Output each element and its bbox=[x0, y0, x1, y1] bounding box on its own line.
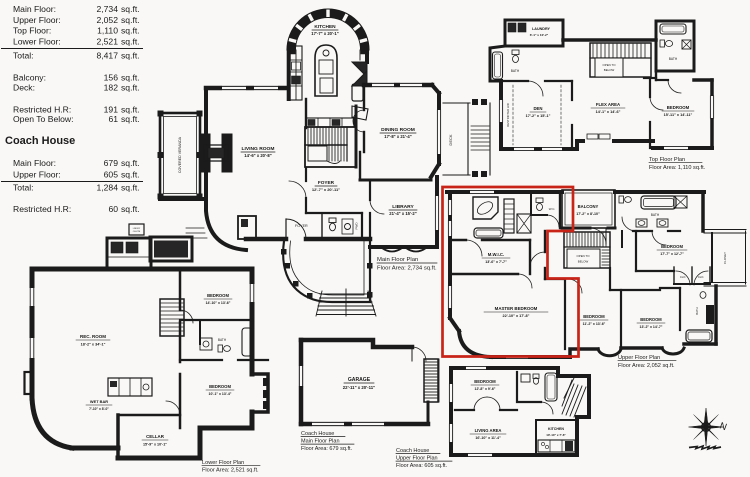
svg-text:Restricted H.R:: Restricted H.R: bbox=[13, 204, 71, 214]
svg-text:22'-10" x 17'-8": 22'-10" x 17'-8" bbox=[503, 314, 530, 318]
svg-text:CLO.: CLO. bbox=[698, 275, 705, 279]
svg-text:12'-8" x 9'-6": 12'-8" x 9'-6" bbox=[475, 387, 496, 391]
svg-text:10'-10" x 7'-6": 10'-10" x 7'-6" bbox=[546, 433, 566, 437]
svg-text:sq.ft.: sq.ft. bbox=[121, 204, 140, 214]
svg-text:LIVING ROOM: LIVING ROOM bbox=[242, 146, 275, 152]
svg-text:156: 156 bbox=[104, 73, 119, 83]
svg-text:MASTER BEDROOM: MASTER BEDROOM bbox=[495, 306, 538, 311]
svg-text:BEDROOM: BEDROOM bbox=[583, 314, 605, 319]
svg-text:sq.ft.: sq.ft. bbox=[121, 51, 140, 61]
svg-text:Open To Below:: Open To Below: bbox=[13, 114, 74, 124]
svg-text:BEDROOM: BEDROOM bbox=[661, 244, 683, 249]
svg-text:191: 191 bbox=[104, 105, 119, 115]
svg-text:Restricted H.R:: Restricted H.R: bbox=[13, 105, 71, 115]
svg-text:BEDROOM: BEDROOM bbox=[207, 293, 229, 298]
svg-text:LNDRY: LNDRY bbox=[133, 228, 141, 230]
svg-text:sq.ft.: sq.ft. bbox=[121, 26, 140, 36]
svg-text:14'-10" x 13'-6": 14'-10" x 13'-6" bbox=[206, 301, 231, 305]
svg-text:Floor Area: 605 sq.ft.: Floor Area: 605 sq.ft. bbox=[396, 463, 448, 469]
svg-text:Lower Floor Plan: Lower Floor Plan bbox=[202, 460, 244, 466]
svg-text:BELOW: BELOW bbox=[604, 68, 615, 72]
svg-text:BATH: BATH bbox=[511, 69, 520, 73]
svg-text:22'-11" x 20'-11": 22'-11" x 20'-11" bbox=[343, 385, 375, 390]
svg-text:Coach House: Coach House bbox=[301, 431, 334, 437]
svg-text:Top Floor Plan: Top Floor Plan bbox=[649, 157, 685, 163]
svg-text:16'-10" x 11'-4": 16'-10" x 11'-4" bbox=[475, 436, 501, 440]
svg-text:GARAGE: GARAGE bbox=[348, 377, 371, 383]
svg-text:OPEN TO: OPEN TO bbox=[577, 254, 591, 258]
svg-text:2,734: 2,734 bbox=[96, 4, 118, 14]
svg-text:15'-9" x 10'-1": 15'-9" x 10'-1" bbox=[143, 443, 167, 447]
svg-text:Floor Area: 2,521 sq.ft.: Floor Area: 2,521 sq.ft. bbox=[202, 468, 259, 474]
svg-text:12'-7" x 20'-11": 12'-7" x 20'-11" bbox=[312, 187, 340, 192]
svg-text:10'-1" x 13'-4": 10'-1" x 13'-4" bbox=[209, 392, 232, 396]
svg-text:Total:: Total: bbox=[13, 51, 34, 61]
svg-text:Main Floor:: Main Floor: bbox=[13, 4, 56, 14]
svg-text:61: 61 bbox=[108, 114, 118, 124]
svg-text:Floor Area: 1,110 sq.ft.: Floor Area: 1,110 sq.ft. bbox=[649, 165, 706, 171]
svg-text:Coach House: Coach House bbox=[5, 135, 75, 147]
svg-text:14'-1" x 14'-6": 14'-1" x 14'-6" bbox=[596, 110, 621, 114]
svg-text:Floor Area: 679 sq.ft.: Floor Area: 679 sq.ft. bbox=[301, 446, 353, 452]
svg-text:Upper Floor:: Upper Floor: bbox=[13, 170, 61, 180]
svg-text:BEDROOM: BEDROOM bbox=[474, 379, 496, 384]
svg-text:sq.ft.: sq.ft. bbox=[121, 83, 140, 93]
svg-text:Top Floor:: Top Floor: bbox=[13, 26, 51, 36]
svg-text:14'-6" x 20'-8": 14'-6" x 20'-8" bbox=[244, 153, 271, 158]
svg-text:Total:: Total: bbox=[13, 183, 34, 193]
svg-text:605: 605 bbox=[104, 170, 119, 180]
svg-text:FLEX AREA: FLEX AREA bbox=[596, 102, 620, 107]
svg-text:DECK: DECK bbox=[448, 134, 453, 145]
svg-text:OPEN TO: OPEN TO bbox=[603, 63, 617, 67]
svg-text:W.C.: W.C. bbox=[549, 207, 556, 211]
svg-text:Upper Floor Plan: Upper Floor Plan bbox=[396, 456, 438, 462]
svg-text:13'-2" x 14'-7": 13'-2" x 14'-7" bbox=[640, 325, 663, 329]
svg-text:CLOSET: CLOSET bbox=[723, 252, 727, 264]
svg-text:17'-7" x 12'-7": 17'-7" x 12'-7" bbox=[660, 252, 684, 256]
svg-text:15'-11" x 14'-11": 15'-11" x 14'-11" bbox=[664, 113, 693, 117]
svg-text:BALCONY: BALCONY bbox=[578, 204, 599, 209]
svg-text:BATH: BATH bbox=[218, 338, 227, 342]
svg-text:WET BAR: WET BAR bbox=[90, 399, 108, 404]
svg-text:Main Floor:: Main Floor: bbox=[13, 158, 56, 168]
svg-text:sq.ft.: sq.ft. bbox=[121, 73, 140, 83]
svg-text:13'-6" x 7'-7": 13'-6" x 7'-7" bbox=[485, 260, 507, 264]
svg-text:sq.ft.: sq.ft. bbox=[121, 114, 140, 124]
svg-text:BEDROOM: BEDROOM bbox=[667, 105, 690, 110]
svg-text:BEDROOM: BEDROOM bbox=[209, 384, 231, 389]
svg-text:7'-10" x 8'-0": 7'-10" x 8'-0" bbox=[89, 407, 109, 411]
svg-text:CELLAR: CELLAR bbox=[146, 434, 165, 439]
svg-text:Balcony:: Balcony: bbox=[13, 73, 46, 83]
svg-text:2,521: 2,521 bbox=[96, 37, 118, 47]
svg-text:18'-2" x 34'-1": 18'-2" x 34'-1" bbox=[81, 343, 106, 347]
svg-text:Floor Area: 2,734 sq.ft.: Floor Area: 2,734 sq.ft. bbox=[377, 266, 437, 272]
svg-text:21'-4" x 15'-2": 21'-4" x 15'-2" bbox=[389, 211, 416, 216]
svg-text:LIBRARY: LIBRARY bbox=[392, 204, 414, 210]
svg-text:sq.ft.: sq.ft. bbox=[121, 170, 140, 180]
svg-text:17'-7" x 20'-1": 17'-7" x 20'-1" bbox=[311, 31, 338, 36]
svg-text:Upper Floor Plan: Upper Floor Plan bbox=[618, 355, 660, 361]
svg-text:COVERED VERANDA: COVERED VERANDA bbox=[178, 136, 182, 173]
svg-text:PWD: PWD bbox=[355, 222, 359, 230]
svg-text:CHUTE: CHUTE bbox=[133, 231, 141, 233]
svg-text:REC. ROOM: REC. ROOM bbox=[80, 334, 106, 339]
svg-text:KITCHEN: KITCHEN bbox=[314, 24, 336, 30]
svg-text:DINING ROOM: DINING ROOM bbox=[381, 127, 415, 133]
svg-text:CLO.: CLO. bbox=[680, 275, 687, 279]
svg-text:sq.ft.: sq.ft. bbox=[121, 158, 140, 168]
svg-text:60: 60 bbox=[108, 204, 118, 214]
svg-text:DEN: DEN bbox=[533, 106, 542, 111]
svg-text:sq.ft.: sq.ft. bbox=[121, 15, 140, 25]
svg-text:sq.ft.: sq.ft. bbox=[121, 183, 140, 193]
svg-text:BATH: BATH bbox=[651, 213, 660, 217]
svg-text:FOYER: FOYER bbox=[295, 224, 308, 228]
svg-text:17'-2" x 15'-1": 17'-2" x 15'-1" bbox=[526, 114, 551, 118]
svg-text:Upper Floor:: Upper Floor: bbox=[13, 15, 61, 25]
svg-text:Lower Floor:: Lower Floor: bbox=[13, 37, 61, 47]
svg-text:LAUNDRY: LAUNDRY bbox=[532, 27, 550, 31]
svg-text:Main Floor Plan: Main Floor Plan bbox=[301, 439, 340, 445]
svg-text:679: 679 bbox=[104, 158, 119, 168]
svg-text:sq.ft.: sq.ft. bbox=[121, 105, 140, 115]
svg-text:KITCHEN: KITCHEN bbox=[548, 427, 564, 431]
svg-text:sq.ft.: sq.ft. bbox=[121, 4, 140, 14]
svg-text:Floor Area: 2,052 sq.ft.: Floor Area: 2,052 sq.ft. bbox=[618, 363, 675, 369]
svg-text:Deck:: Deck: bbox=[13, 83, 35, 93]
svg-text:BEDROOM: BEDROOM bbox=[640, 317, 662, 322]
svg-text:LIVING AREA: LIVING AREA bbox=[475, 428, 502, 433]
svg-text:sq.ft.: sq.ft. bbox=[121, 37, 140, 47]
svg-text:FOYER: FOYER bbox=[318, 180, 335, 185]
svg-text:1,284: 1,284 bbox=[96, 183, 118, 193]
svg-text:2,052: 2,052 bbox=[96, 15, 118, 25]
svg-text:M.W.I.C.: M.W.I.C. bbox=[488, 252, 504, 257]
svg-text:RESTRICTED H/R: RESTRICTED H/R bbox=[506, 103, 510, 126]
svg-text:BATH: BATH bbox=[669, 57, 678, 61]
svg-text:8,417: 8,417 bbox=[96, 51, 118, 61]
svg-text:1,110: 1,110 bbox=[97, 26, 118, 36]
svg-text:BELOW: BELOW bbox=[578, 260, 589, 264]
svg-text:Main Floor Plan: Main Floor Plan bbox=[377, 257, 418, 263]
svg-text:N: N bbox=[718, 420, 728, 433]
svg-text:11'-2" x 13'-6": 11'-2" x 13'-6" bbox=[583, 322, 606, 326]
svg-text:17'-2" x 8'-10": 17'-2" x 8'-10" bbox=[576, 212, 600, 216]
svg-text:182: 182 bbox=[104, 83, 119, 93]
svg-text:6'-1" x 10'-2": 6'-1" x 10'-2" bbox=[530, 33, 549, 37]
svg-text:Coach House: Coach House bbox=[396, 448, 429, 454]
svg-text:17'-8" x 21'-4": 17'-8" x 21'-4" bbox=[384, 134, 411, 139]
svg-text:BATH: BATH bbox=[695, 307, 699, 315]
